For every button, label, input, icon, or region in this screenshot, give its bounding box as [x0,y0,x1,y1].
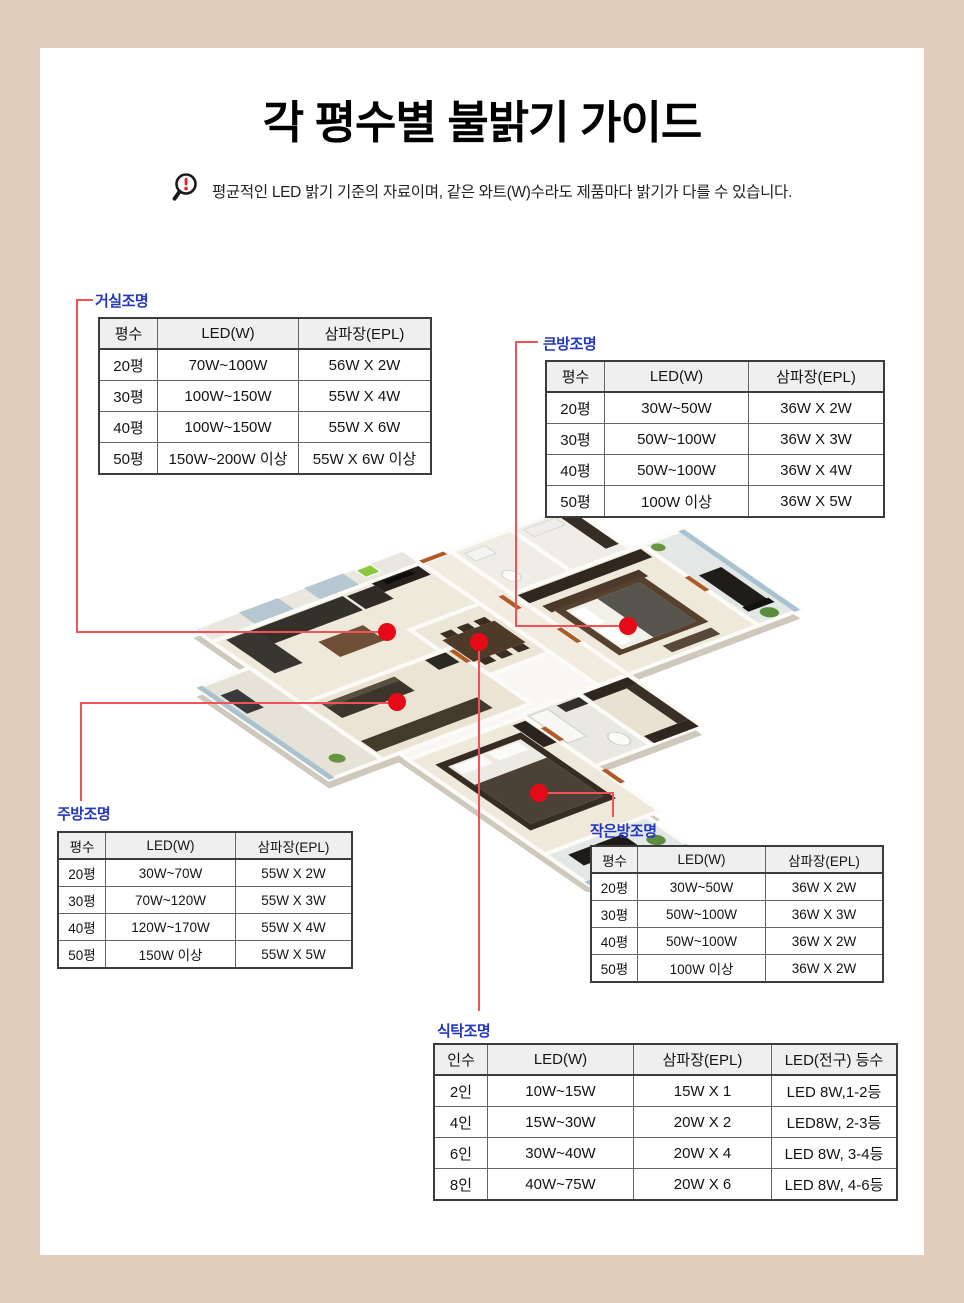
column-header: 삼파장(EPL) [299,318,432,349]
table-cell: LED 8W,1-2등 [772,1075,898,1107]
table-cell: 50평 [99,443,158,475]
table-cell: 40평 [99,412,158,443]
table-cell: 20평 [99,349,158,381]
table-cell: 100W~150W [158,412,299,443]
table-row: 20평30W~50W36W X 2W [546,392,884,424]
column-header: 평수 [546,361,605,392]
table-cell: 100W~150W [158,381,299,412]
column-header: LED(W) [605,361,749,392]
table-cell: 20평 [591,873,638,901]
table-row: 20평70W~100W56W X 2W [99,349,431,381]
table-cell: 30W~50W [605,392,749,424]
table-cell: 20W X 2 [634,1107,772,1138]
table-cell: 30평 [546,424,605,455]
table-row: 40평100W~150W55W X 6W [99,412,431,443]
table-cell: 30평 [99,381,158,412]
table-cell: 20W X 4 [634,1138,772,1169]
table-row: 6인30W~40W20W X 4LED 8W, 3-4등 [434,1138,897,1169]
label-big-room: 큰방조명 [543,333,596,354]
table-cell: 36W X 4W [749,455,885,486]
living-room-table: 평수LED(W)삼파장(EPL)20평70W~100W56W X 2W30평10… [98,317,432,475]
table-cell: 120W~170W [106,914,236,941]
table-cell: 70W~120W [106,887,236,914]
table-cell: 30W~40W [488,1138,634,1169]
table-cell: 40W~75W [488,1169,634,1201]
table-cell: 50W~100W [638,901,766,928]
table-cell: 100W 이상 [638,955,766,983]
table-cell: 20평 [546,392,605,424]
table-row: 40평50W~100W36W X 2W [591,928,883,955]
table-row: 50평100W 이상36W X 2W [591,955,883,983]
small-room-table: 평수LED(W)삼파장(EPL)20평30W~50W36W X 2W30평50W… [590,845,884,983]
table-cell: 30평 [591,901,638,928]
table-cell: 56W X 2W [299,349,432,381]
table-row: 50평100W 이상36W X 5W [546,486,884,518]
column-header: 삼파장(EPL) [236,832,353,859]
kitchen-table: 평수LED(W)삼파장(EPL)20평30W~70W55W X 2W30평70W… [57,831,353,969]
column-header: LED(W) [158,318,299,349]
table-cell: 36W X 2W [766,873,884,901]
table-cell: 40평 [546,455,605,486]
table-cell: 8인 [434,1169,488,1201]
dining-table-table: 인수LED(W)삼파장(EPL)LED(전구) 등수2인10W~15W15W X… [433,1043,898,1201]
table-cell: 55W X 6W [299,412,432,443]
table-cell: 55W X 4W [299,381,432,412]
table-cell: 36W X 3W [749,424,885,455]
table-cell: 50W~100W [605,455,749,486]
table-cell: 36W X 2W [749,392,885,424]
table-row: 30평100W~150W55W X 4W [99,381,431,412]
label-kitchen: 주방조명 [57,803,110,824]
table-cell: 30W~70W [106,859,236,887]
table-cell: LED 8W, 3-4등 [772,1138,898,1169]
table-cell: 10W~15W [488,1075,634,1107]
table-cell: 36W X 3W [766,901,884,928]
table-cell: 2인 [434,1075,488,1107]
table-cell: 40평 [58,914,106,941]
table-row: 30평70W~120W55W X 3W [58,887,352,914]
table-row: 20평30W~70W55W X 2W [58,859,352,887]
table-row: 50평150W 이상55W X 5W [58,941,352,969]
notice-text: 평균적인 LED 밝기 기준의 자료이며, 같은 와트(W)수라도 제품마다 밝… [212,180,792,202]
table-cell: 30W~50W [638,873,766,901]
table-cell: 36W X 5W [749,486,885,518]
big-room-table: 평수LED(W)삼파장(EPL)20평30W~50W36W X 2W30평50W… [545,360,885,518]
table-cell: 150W 이상 [106,941,236,969]
table-cell: 55W X 4W [236,914,353,941]
table-row: 50평150W~200W 이상55W X 6W 이상 [99,443,431,475]
table-cell: 15W~30W [488,1107,634,1138]
table-row: 20평30W~50W36W X 2W [591,873,883,901]
table-cell: 30평 [58,887,106,914]
table-row: 4인15W~30W20W X 2LED8W, 2-3등 [434,1107,897,1138]
table-cell: 150W~200W 이상 [158,443,299,475]
table-cell: 55W X 3W [236,887,353,914]
table-row: 30평50W~100W36W X 3W [591,901,883,928]
column-header: 삼파장(EPL) [766,846,884,873]
column-header: LED(W) [638,846,766,873]
table-cell: 50평 [591,955,638,983]
table-cell: 20평 [58,859,106,887]
table-row: 8인40W~75W20W X 6LED 8W, 4-6등 [434,1169,897,1201]
column-header: LED(전구) 등수 [772,1044,898,1075]
column-header: LED(W) [488,1044,634,1075]
table-cell: 40평 [591,928,638,955]
notice-row: 평균적인 LED 밝기 기준의 자료이며, 같은 와트(W)수라도 제품마다 밝… [40,172,924,209]
table-row: 30평50W~100W36W X 3W [546,424,884,455]
column-header: 평수 [58,832,106,859]
magnifier-warning-icon [172,172,202,209]
table-cell: 50W~100W [605,424,749,455]
column-header: 삼파장(EPL) [634,1044,772,1075]
table-cell: 4인 [434,1107,488,1138]
label-small-room: 작은방조명 [590,820,657,841]
table-cell: 55W X 5W [236,941,353,969]
table-cell: 6인 [434,1138,488,1169]
table-cell: 100W 이상 [605,486,749,518]
table-cell: 36W X 2W [766,928,884,955]
column-header: 인수 [434,1044,488,1075]
table-cell: LED8W, 2-3등 [772,1107,898,1138]
table-row: 40평120W~170W55W X 4W [58,914,352,941]
column-header: 삼파장(EPL) [749,361,885,392]
label-dining: 식탁조명 [437,1020,490,1041]
table-cell: 20W X 6 [634,1169,772,1201]
column-header: 평수 [99,318,158,349]
column-header: LED(W) [106,832,236,859]
table-cell: 15W X 1 [634,1075,772,1107]
table-cell: 50평 [58,941,106,969]
table-row: 40평50W~100W36W X 4W [546,455,884,486]
label-living-room: 거실조명 [95,290,148,311]
table-cell: 36W X 2W [766,955,884,983]
table-cell: 70W~100W [158,349,299,381]
page-title: 각 평수별 불밝기 가이드 [40,86,924,151]
table-cell: 50평 [546,486,605,518]
column-header: 평수 [591,846,638,873]
table-cell: 50W~100W [638,928,766,955]
table-cell: LED 8W, 4-6등 [772,1169,898,1201]
infographic-page: 각 평수별 불밝기 가이드 평균적인 LED 밝기 기준의 자료이며, 같은 와… [0,0,964,1303]
table-row: 2인10W~15W15W X 1LED 8W,1-2등 [434,1075,897,1107]
table-cell: 55W X 6W 이상 [299,443,432,475]
table-cell: 55W X 2W [236,859,353,887]
